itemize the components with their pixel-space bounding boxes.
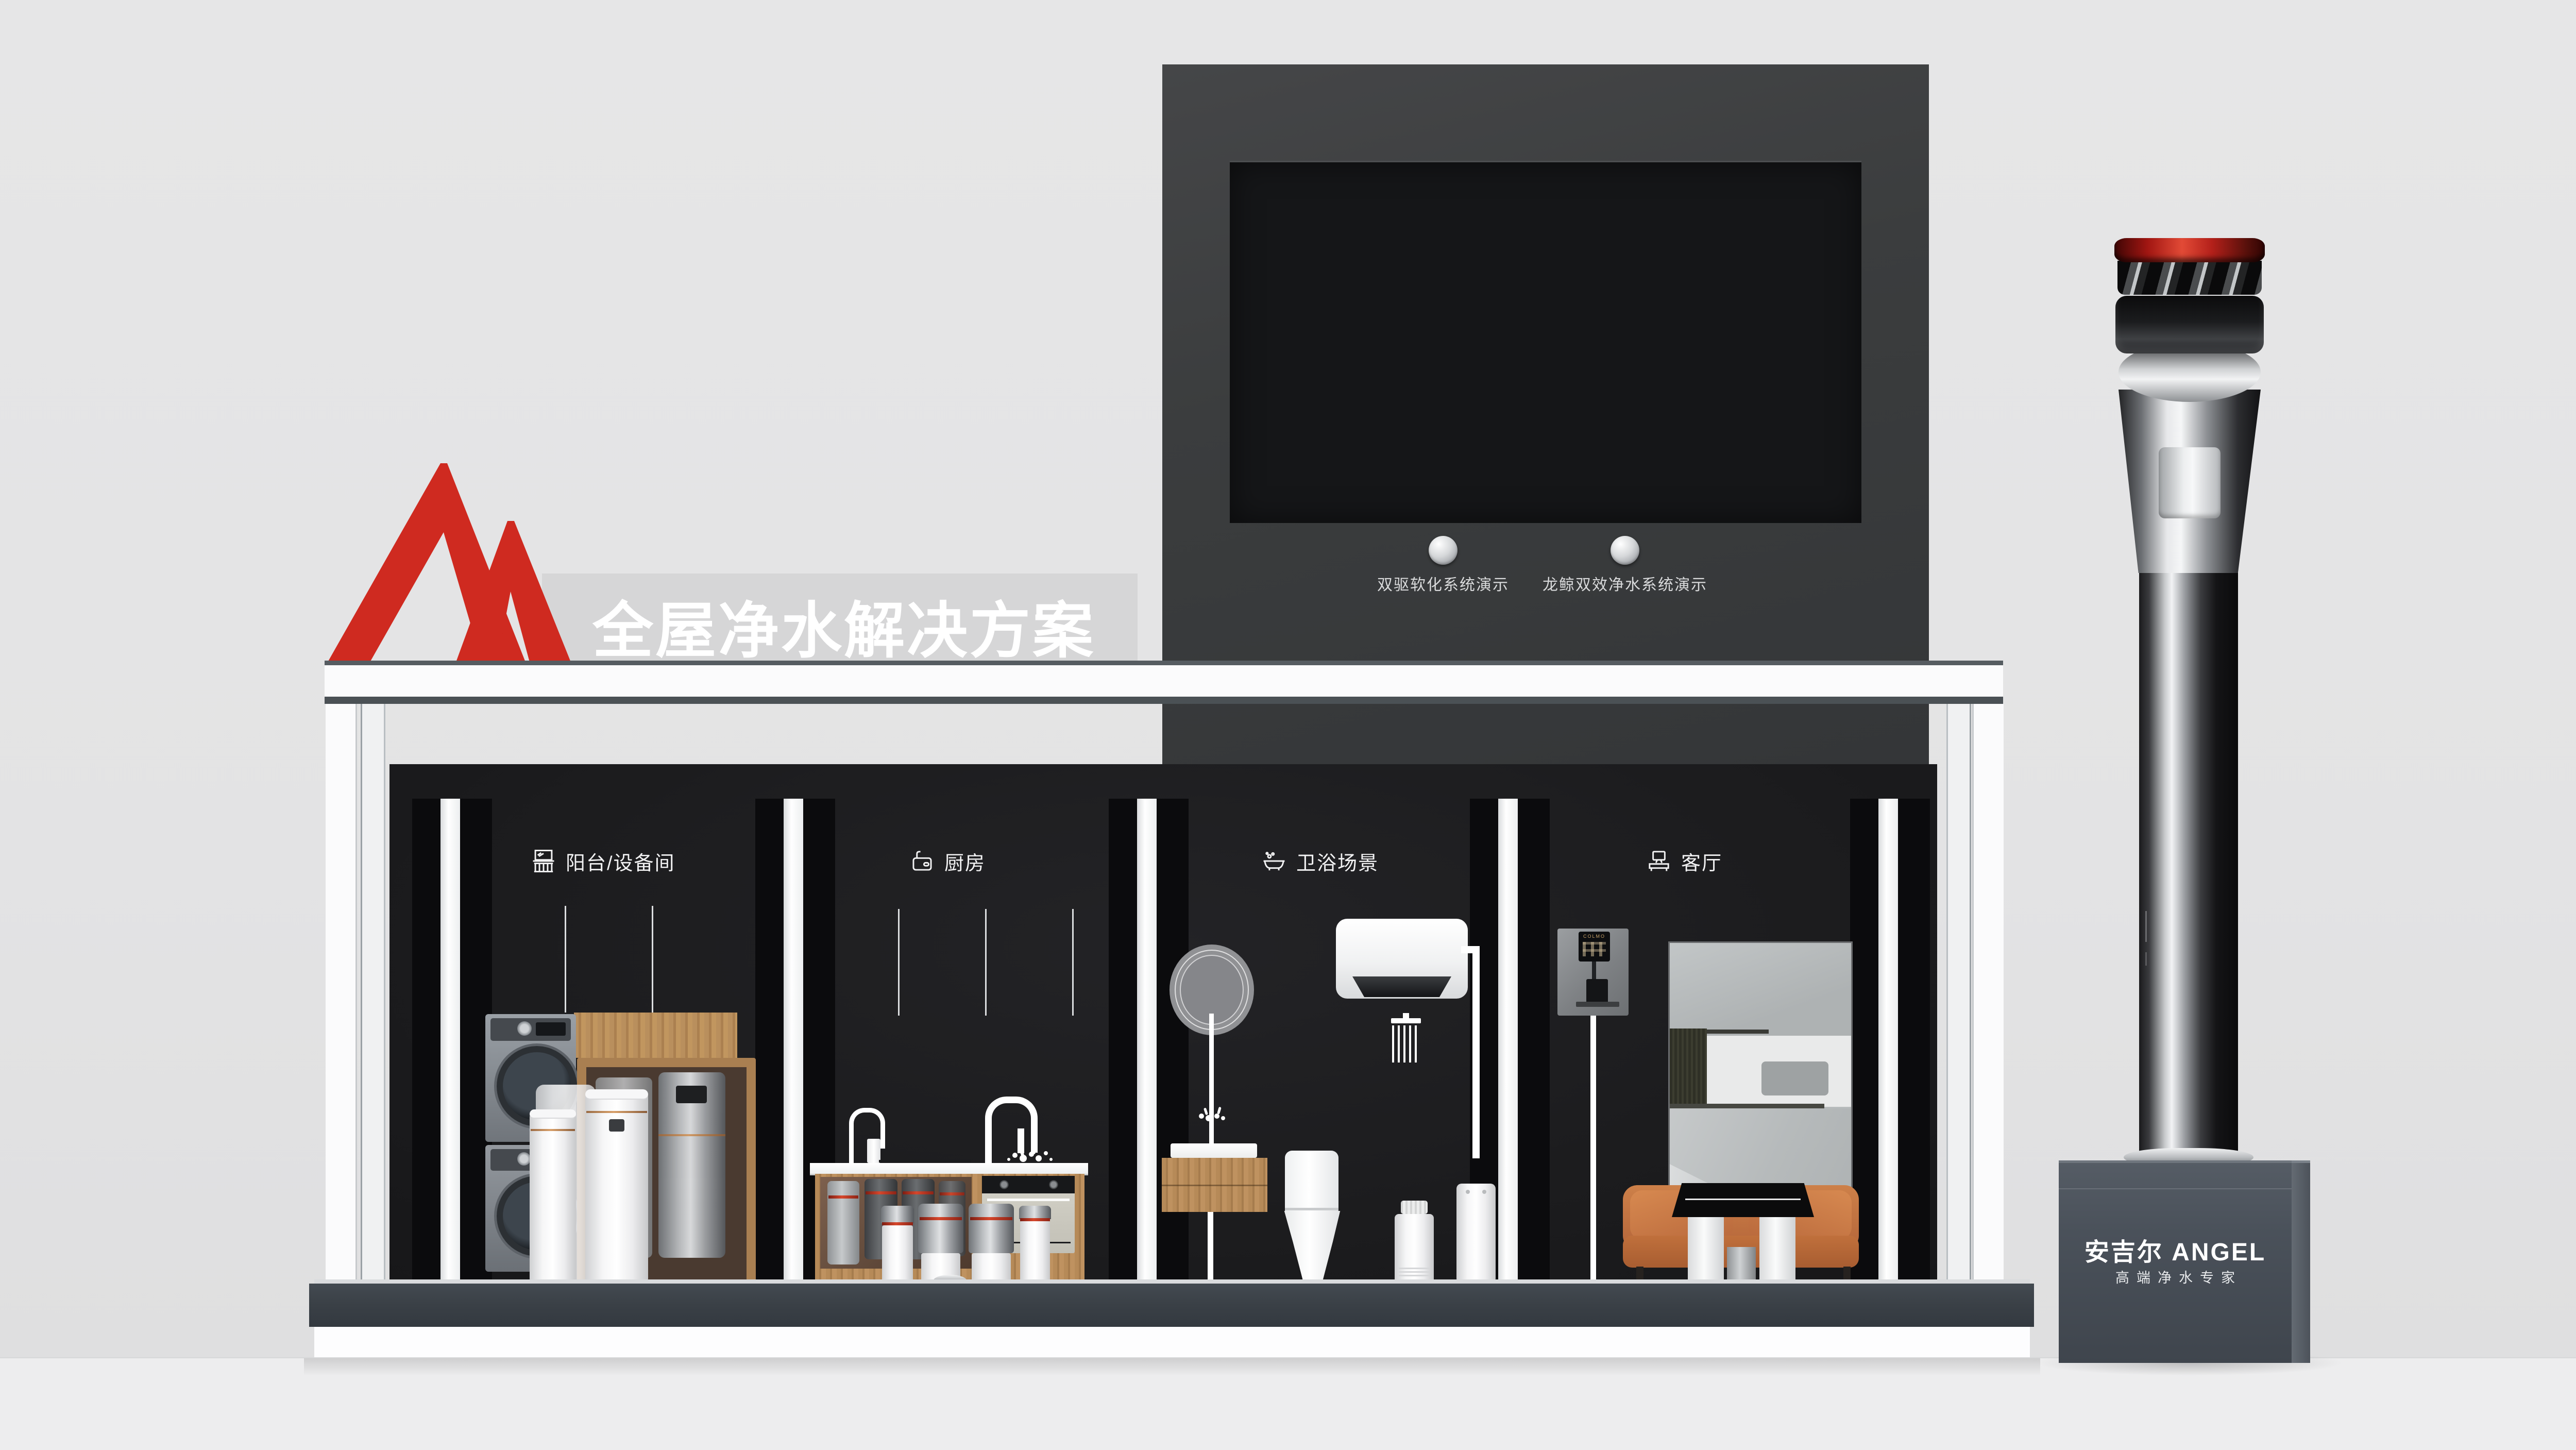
tank-trim — [586, 1111, 647, 1113]
bathtub-icon — [1261, 848, 1287, 874]
banner-title: 全屋净水解决方案 — [592, 581, 1139, 669]
tank-lid — [585, 1089, 648, 1100]
water-splash — [999, 1143, 1056, 1165]
toilet-seat-line — [1285, 1208, 1338, 1210]
demo-button-label: 龙鲸双效净水系统演示 — [1496, 572, 1754, 595]
canister-cap — [918, 1204, 963, 1253]
platform-base — [314, 1327, 2030, 1357]
table-top-slit — [1685, 1199, 1801, 1200]
pipeline-purifier — [1456, 1184, 1496, 1284]
angel-mountain-logo-icon — [325, 460, 575, 662]
balcony-wood-fascia — [574, 1013, 737, 1058]
filter-cap — [1401, 1201, 1428, 1214]
dispenser-screen: COLMO — [1579, 932, 1610, 962]
tower-label-mark — [2145, 911, 2147, 942]
tower-pedestal-seam — [2059, 1188, 2292, 1189]
tower-column — [2139, 571, 2238, 1160]
brand-tagline: 高端净水专家 — [2059, 1267, 2292, 1287]
frame-top-edge — [325, 661, 2003, 665]
shower-head — [1391, 1018, 1421, 1023]
canister-ring — [970, 1217, 1012, 1220]
section-label-balcony: 阳台/设备间 — [531, 848, 675, 874]
dryer-control-panel — [490, 1018, 571, 1041]
dishwasher-panel — [982, 1176, 1075, 1193]
dispenser-pipe — [1590, 1016, 1596, 1284]
faucet-cup — [867, 1139, 880, 1163]
frame-back-top-edge — [325, 697, 2003, 704]
tower-pedestal-side — [2292, 1160, 2310, 1363]
dispenser-arm — [1592, 962, 1596, 980]
tank-trim — [531, 1129, 575, 1131]
demo-button-purification[interactable] — [1611, 536, 1639, 565]
vanity-cabinet — [1162, 1158, 1267, 1212]
filter-canister-large — [969, 1204, 1014, 1284]
section-label-kitchen: 厨房 — [909, 848, 986, 874]
partition-shadow — [412, 799, 440, 1284]
dispenser-buttons[interactable] — [1583, 942, 1606, 956]
canister-cap — [1019, 1206, 1051, 1219]
water-heater — [1336, 919, 1468, 999]
section-label-text: 阳台/设备间 — [566, 847, 675, 875]
canister-cap — [969, 1204, 1014, 1253]
partition-pillar — [440, 799, 460, 1284]
balcony-icon — [531, 848, 556, 874]
washer-knob — [517, 1152, 531, 1166]
kitchen-faucet-stem — [985, 1134, 992, 1163]
partition-shadow — [755, 799, 784, 1284]
canister-body — [882, 1225, 913, 1284]
canister-ring — [903, 1191, 934, 1194]
painting-dark-patch — [1670, 1029, 1707, 1107]
small-faucet-stem — [849, 1136, 854, 1163]
canister-cap — [881, 1206, 914, 1223]
painting-upper — [1670, 943, 1851, 1036]
partition-pillar — [1137, 799, 1157, 1284]
frame-column-left — [326, 704, 357, 1284]
frame-top-bar — [325, 665, 2003, 697]
heater-underside — [1352, 976, 1451, 997]
tv-console-icon — [1646, 848, 1672, 874]
section-label-bath: 卫浴场景 — [1261, 848, 1379, 874]
toilet-tank — [1285, 1151, 1338, 1212]
demo-screen[interactable] — [1230, 161, 1861, 523]
vanity-stand — [1208, 1212, 1213, 1284]
filter-canister-large — [918, 1204, 963, 1284]
platform-fascia — [309, 1284, 2034, 1327]
table-leg — [1688, 1211, 1724, 1284]
shower-neck — [1403, 1013, 1409, 1018]
frame-column-left-back — [361, 704, 385, 1284]
vanity-drawer-seam — [1162, 1185, 1267, 1186]
booth-floor-shadow — [304, 1358, 2040, 1376]
dishwasher-knob — [999, 1180, 1009, 1189]
partition-pillar — [1878, 799, 1898, 1284]
partition-shadow — [1898, 799, 1930, 1284]
painting-gray-blob — [1761, 1061, 1828, 1095]
table-center-column — [1727, 1247, 1756, 1284]
table-leg — [1759, 1211, 1795, 1284]
tower-red-ring — [2114, 238, 2265, 262]
abstract-painting — [1668, 941, 1853, 1225]
partition-shadow — [1109, 799, 1137, 1284]
basin-faucet — [1209, 1014, 1214, 1143]
metal-softener-tank — [658, 1072, 725, 1258]
dispenser-cup — [1586, 979, 1608, 1003]
shower-filter — [1395, 1201, 1434, 1284]
tower-faceted-collar — [2117, 261, 2262, 295]
platform-top-edge — [314, 1279, 2030, 1284]
canister-body — [1020, 1221, 1050, 1284]
section-label-text: 卫浴场景 — [1296, 847, 1379, 875]
purifier-dot — [1482, 1190, 1486, 1194]
purifier-dot — [1466, 1190, 1470, 1194]
tower-handle — [2159, 447, 2221, 518]
hob-strip — [879, 1160, 971, 1162]
section-label-text: 客厅 — [1681, 847, 1722, 875]
section-label-living: 客厅 — [1646, 848, 1722, 874]
demo-button-softening[interactable] — [1429, 536, 1458, 565]
frame-column-right-back — [1946, 704, 1971, 1284]
dryer-knob — [517, 1021, 532, 1036]
partition-pillar — [1498, 799, 1518, 1284]
tank-logo-plate — [609, 1119, 624, 1132]
painting-base-line — [1670, 1104, 1824, 1108]
painting-dark-line — [1707, 1030, 1769, 1034]
partition-pillar — [784, 799, 803, 1284]
balcony-upper-cabinet — [479, 906, 737, 1013]
dryer-display — [536, 1022, 566, 1036]
water-tank-large — [585, 1089, 648, 1284]
brand-logo-text: 安吉尔 ANGEL — [2059, 1232, 2292, 1268]
section-label-text: 厨房 — [944, 847, 986, 875]
vanity-basin — [1171, 1143, 1257, 1158]
canister-ring — [828, 1195, 858, 1199]
heater-pipe — [1472, 946, 1480, 1158]
dispenser-tray — [1576, 1002, 1619, 1007]
dispenser-brand: COLMO — [1579, 934, 1610, 939]
tank-trim — [658, 1134, 725, 1136]
filter-canister — [1019, 1206, 1051, 1284]
water-tank — [530, 1109, 576, 1284]
shower-spray — [1392, 1025, 1420, 1063]
tank-display — [676, 1086, 707, 1103]
frame-column-right — [1972, 704, 2004, 1284]
dishwasher-handle — [987, 1199, 1070, 1201]
tower-black-bulge — [2115, 296, 2264, 353]
table-top — [1672, 1183, 1814, 1217]
dishwasher-knob — [1049, 1180, 1058, 1189]
kitchen-upper-cabinet — [812, 909, 1087, 1016]
tower-label-mark — [2145, 952, 2147, 966]
filter-ridges — [1399, 1268, 1430, 1278]
wall-water-dispenser: COLMO — [1557, 929, 1629, 1016]
tank-lid — [530, 1109, 576, 1119]
exhibition-scene: 安吉尔空间大师系列核心技术 双驱软化系统演示 龙鲸双效净水系统演示 全屋净水解决… — [0, 0, 2576, 1449]
kitchen-sink-icon — [909, 848, 935, 874]
filter-canister — [881, 1206, 914, 1284]
canister-ring — [940, 1192, 964, 1195]
canister-ring — [866, 1191, 896, 1194]
partition-shadow — [1518, 799, 1550, 1284]
canister-ring — [920, 1217, 962, 1220]
tech-panel: 安吉尔空间大师系列核心技术 双驱软化系统演示 龙鲸双效净水系统演示 — [1162, 64, 1929, 764]
recess-canister — [827, 1181, 859, 1264]
